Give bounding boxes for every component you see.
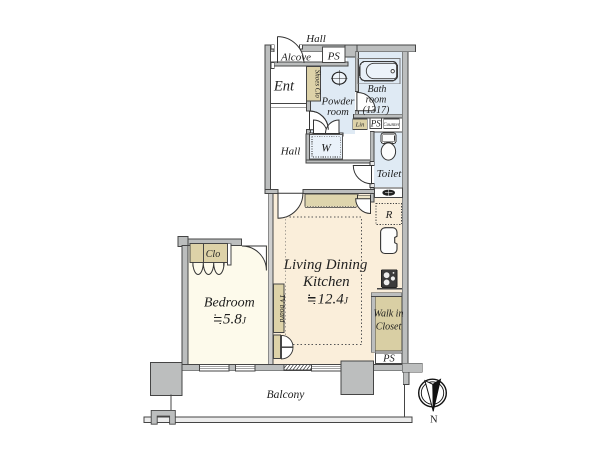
svg-text:Powder: Powder [321, 97, 356, 108]
svg-text:room: room [366, 95, 387, 106]
svg-text:Counter: Counter [383, 123, 399, 128]
svg-text:Clo: Clo [206, 249, 220, 260]
svg-text:Lin: Lin [355, 122, 365, 129]
svg-text:N: N [430, 415, 438, 426]
svg-text:Ent: Ent [273, 79, 295, 95]
svg-text:R: R [385, 209, 393, 221]
svg-text:Kitchen: Kitchen [302, 274, 350, 290]
svg-text:Balcony: Balcony [267, 389, 306, 401]
svg-text:PS: PS [327, 51, 341, 63]
svg-text:room: room [327, 107, 349, 118]
svg-text:Hall: Hall [305, 33, 326, 45]
svg-text:Bath: Bath [368, 84, 387, 95]
svg-text:PS: PS [370, 118, 381, 128]
svg-text:Toilet: Toilet [377, 168, 403, 180]
svg-text:Hall: Hall [280, 146, 301, 158]
svg-text:PS: PS [382, 354, 395, 365]
svg-text:(1317): (1317) [363, 105, 390, 116]
svg-text:Closet: Closet [376, 322, 402, 333]
svg-text:TV board: TV board [278, 294, 287, 322]
svg-text:Alcove: Alcove [280, 52, 311, 64]
svg-text:Living Dining: Living Dining [283, 257, 368, 273]
svg-text:Walk in: Walk in [374, 309, 404, 320]
svg-text:Bedroom: Bedroom [204, 296, 255, 311]
svg-text:Shoes Clo: Shoes Clo [314, 70, 322, 99]
svg-text:W: W [321, 143, 332, 155]
